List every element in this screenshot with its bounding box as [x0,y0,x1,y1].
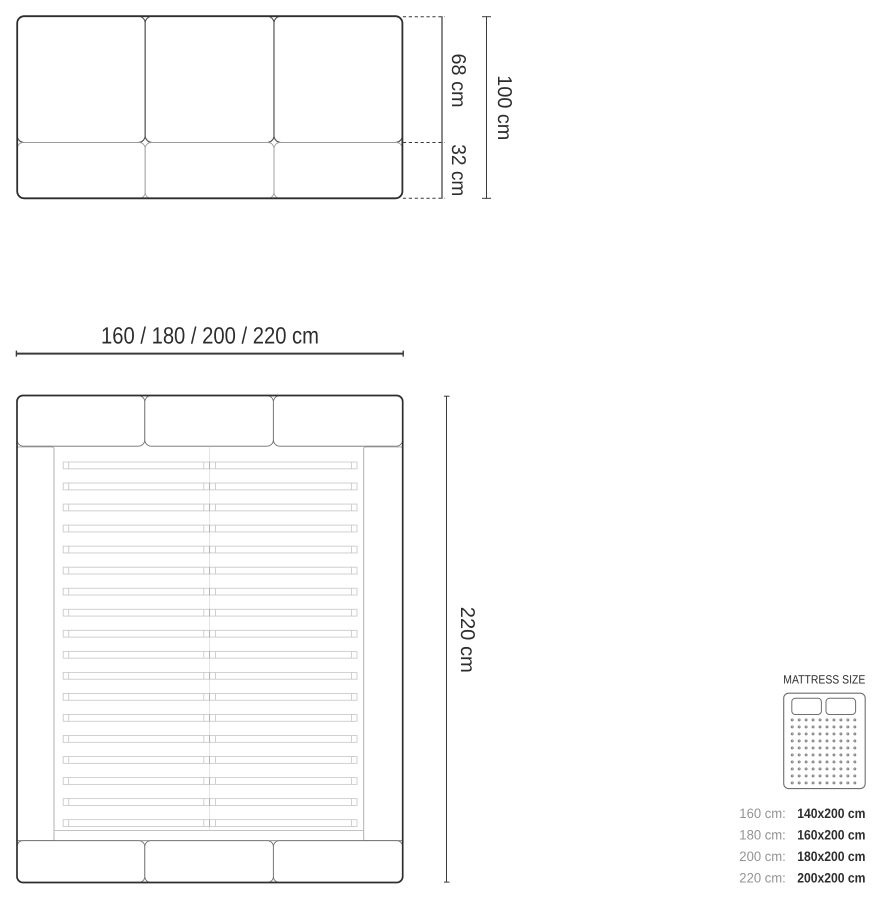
svg-text:180x200 cm: 180x200 cm [797,849,865,864]
svg-text:160 cm:: 160 cm: [739,806,786,821]
svg-text:68 cm: 68 cm [447,54,469,108]
svg-text:180 cm:: 180 cm: [739,827,786,842]
svg-text:200x200 cm: 200x200 cm [797,870,865,885]
svg-text:32 cm: 32 cm [447,144,469,196]
svg-text:220 cm: 220 cm [456,607,478,673]
svg-text:160x200 cm: 160x200 cm [797,827,865,842]
svg-text:200 cm:: 200 cm: [739,849,786,864]
svg-text:MATTRESS SIZE: MATTRESS SIZE [783,672,865,686]
svg-text:100 cm: 100 cm [493,75,515,140]
svg-text:220 cm:: 220 cm: [739,870,786,885]
svg-text:160 / 180 / 200 / 220 cm: 160 / 180 / 200 / 220 cm [101,323,319,349]
svg-text:140x200 cm: 140x200 cm [797,806,865,821]
